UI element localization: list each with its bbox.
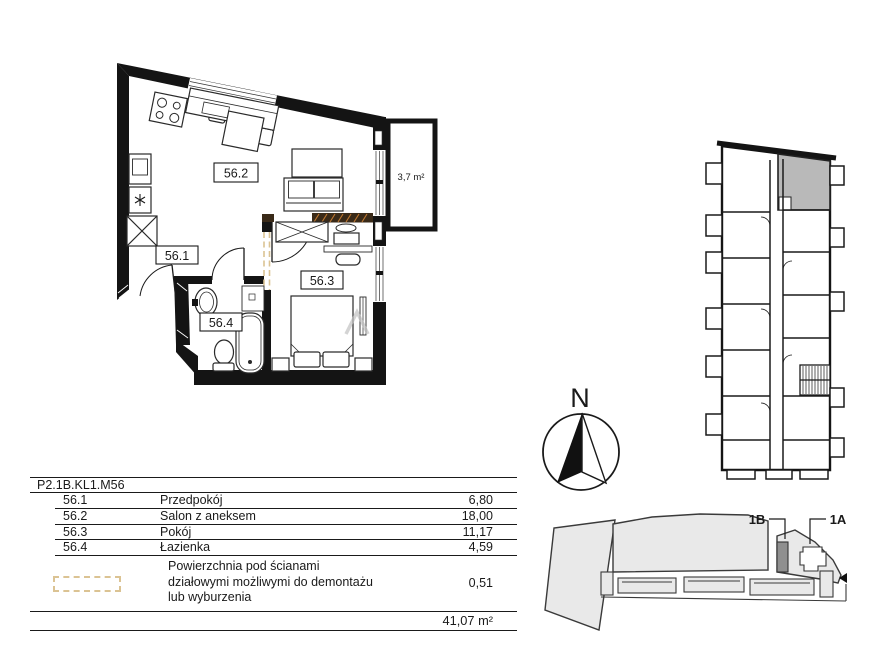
room-label-living: 56.2: [214, 163, 258, 182]
washing-machine: [129, 187, 151, 213]
nightstand: [272, 358, 289, 371]
bathroom-door: [212, 248, 244, 280]
unit-door-notch: [779, 197, 791, 210]
sink: [192, 288, 217, 316]
apartment-code: P2.1B.KL1.M56: [30, 477, 517, 493]
entrance-door: [140, 265, 176, 300]
nightstand: [355, 358, 372, 371]
balcony: 3,7 m²: [388, 121, 435, 229]
tv-cabinet: [292, 149, 342, 177]
pillow: [323, 352, 349, 367]
desk-chair: [336, 254, 360, 265]
room-number: 56.2: [55, 509, 160, 524]
pillow: [294, 352, 320, 367]
bed: [291, 296, 353, 367]
kitchen-sink-cabinet: [129, 154, 151, 184]
room-number: 56.4: [55, 540, 160, 555]
room-label-bathroom: 56.4: [200, 313, 242, 331]
demolition-note-text: Powierzchnia pod ścianami działowymi moż…: [168, 559, 373, 606]
room-name: Przedpokój: [160, 493, 427, 508]
room-area: 11,17: [427, 525, 517, 540]
room-area: 18,00: [427, 509, 517, 524]
note-line: działowymi możliwymi do demontażu: [168, 575, 373, 591]
svg-text:56.3: 56.3: [310, 274, 334, 288]
apartment-plan: 3,7 m²: [117, 63, 435, 385]
desk-with-computer: [324, 224, 372, 265]
demolition-strip: [262, 213, 373, 223]
left-wall-units: [127, 154, 157, 246]
room-name: Łazienka: [160, 540, 427, 555]
room-name: Pokój: [160, 525, 427, 540]
room-area: 4,59: [427, 540, 517, 555]
wardrobe: [276, 222, 328, 242]
stair-b-label: 1B: [749, 512, 766, 527]
stair-b-marker: [777, 542, 788, 572]
demolition-area: 0,51: [469, 576, 493, 590]
sofa: [284, 178, 343, 211]
fridge-cabinet: [127, 216, 157, 246]
living-room-furniture: [284, 149, 343, 211]
stair-a-label: 1A: [830, 512, 847, 527]
area-table: P2.1B.KL1.M56 56.1 Przedpokój 6,80 56.2 …: [30, 477, 517, 631]
table-row: 56.1 Przedpokój 6,80: [55, 493, 517, 509]
room-name: Salon z aneksem: [160, 509, 427, 524]
north-label: N: [570, 383, 590, 413]
compass: N: [543, 383, 619, 490]
shower-box: [242, 286, 264, 311]
demountable-wall-dashed: [264, 232, 270, 290]
bedroom-furniture: [272, 222, 372, 371]
staircase: [800, 365, 830, 395]
site-building-main: [613, 514, 768, 572]
svg-text:56.4: 56.4: [209, 316, 233, 330]
room-label-hall: 56.1: [156, 246, 198, 264]
table-row: 56.3 Pokój 11,17: [55, 525, 517, 541]
note-line: Powierzchnia pod ścianami: [168, 559, 373, 575]
demountable-wall-swatch-icon: [53, 576, 121, 592]
demolition-note-row: Powierzchnia pod ścianami działowymi moż…: [30, 556, 517, 611]
building-overview: [706, 143, 844, 479]
svg-text:56.1: 56.1: [165, 249, 189, 263]
stove: [149, 92, 187, 127]
total-area: 41,07 m²: [30, 611, 517, 631]
room-label-bedroom: 56.3: [301, 271, 343, 289]
svg-text:56.2: 56.2: [224, 167, 248, 181]
site-plan: 1B 1A: [545, 512, 847, 630]
room-number: 56.1: [55, 493, 160, 508]
floor-plan-sheet: 3,7 m²: [0, 0, 880, 652]
toilet: [213, 340, 234, 371]
table-row: 56.4 Łazienka 4,59: [55, 540, 517, 556]
room-area: 6,80: [427, 493, 517, 508]
balcony-area-label: 3,7 m²: [398, 172, 425, 183]
table-row: 56.2 Salon z aneksem 18,00: [55, 509, 517, 525]
dining-table: [222, 111, 264, 151]
note-line: lub wyburzenia: [168, 590, 373, 606]
room-number: 56.3: [55, 525, 160, 540]
